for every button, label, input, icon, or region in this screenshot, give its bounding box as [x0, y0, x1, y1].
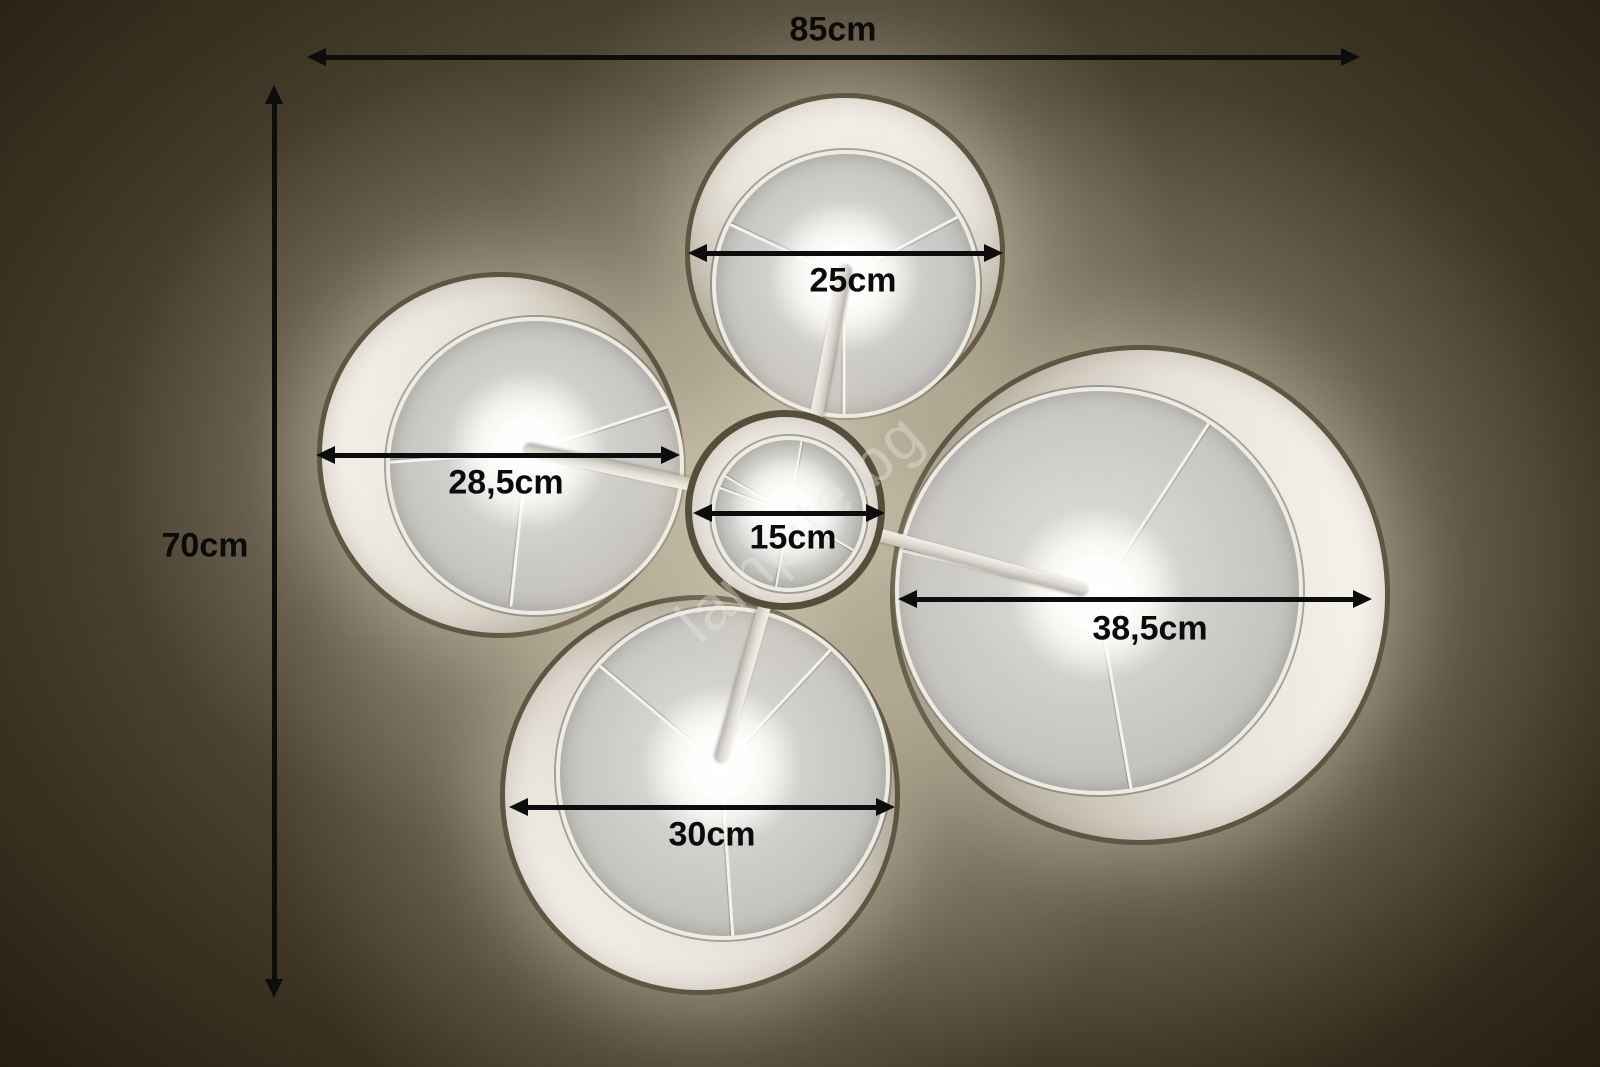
overall-width-label: 85cm: [790, 11, 877, 50]
shade-opening: [556, 606, 890, 940]
shade-bottom: [500, 595, 900, 995]
overall-height-arrow: [272, 103, 277, 980]
ceiling-light-dimension-photo: lampite.bg 85cm 70cm 25cm 28,5cm 15cm 38…: [0, 0, 1600, 1067]
shade-left-diameter-label: 28,5cm: [448, 464, 563, 503]
overall-width-arrow: [325, 55, 1342, 60]
shade-right: [890, 345, 1390, 845]
shade-center-diameter-arrow: [711, 511, 867, 516]
shade-opening: [895, 387, 1303, 795]
shade-left-diameter-arrow: [334, 453, 662, 458]
shade-center-diameter-label: 15cm: [750, 519, 837, 558]
shade-bottom-diameter-arrow: [527, 805, 877, 810]
overall-height-label: 70cm: [162, 527, 249, 566]
shade-top-diameter-arrow: [706, 251, 985, 256]
shade-bottom-diameter-label: 30cm: [669, 816, 756, 855]
shade-right-diameter-arrow: [916, 597, 1354, 602]
shade-top-diameter-label: 25cm: [810, 262, 897, 301]
shade-right-diameter-label: 38,5cm: [1092, 610, 1207, 649]
